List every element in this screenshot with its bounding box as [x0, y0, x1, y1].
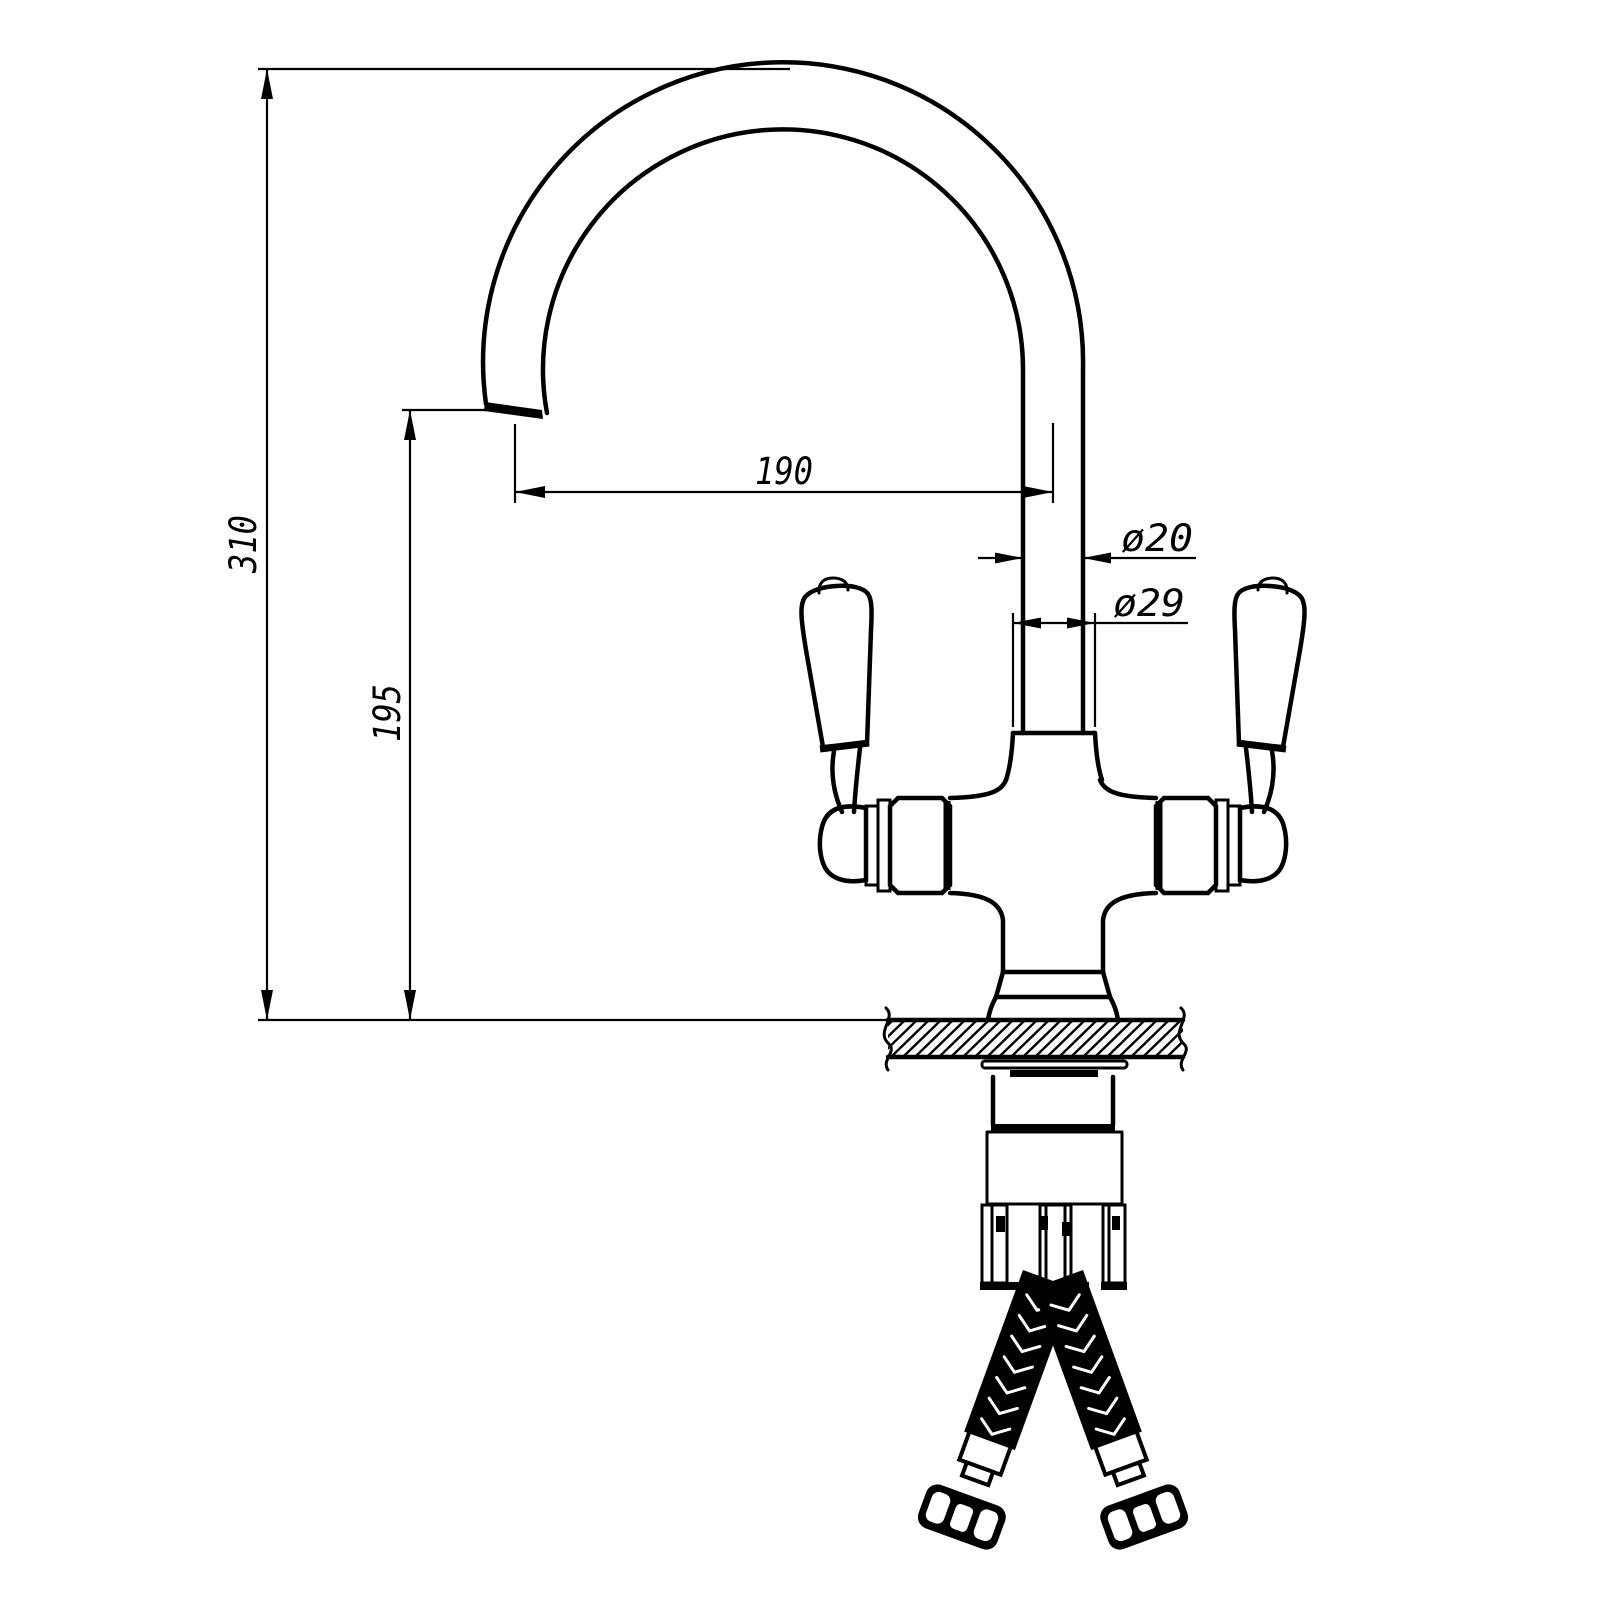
countertop-break-mark — [884, 1008, 891, 1070]
supply-hoses — [915, 1265, 1192, 1553]
right-handle — [1156, 578, 1305, 893]
dimension-body-diameter: ø29 — [1013, 582, 1188, 727]
dimension-arrow — [261, 990, 273, 1020]
faucet-body — [950, 733, 1156, 1020]
body-bottom-fillet — [950, 893, 1003, 972]
faucet-technical-drawing: 310 195 190 ø20 ø29 — [0, 0, 1600, 1600]
base-cone-side — [996, 972, 1110, 997]
nut-prong-detail — [1046, 1205, 1065, 1283]
dimension-label-d20: ø20 — [1121, 517, 1193, 560]
mounting-hardware — [980, 1061, 1127, 1290]
dimension-arrow — [1023, 486, 1053, 498]
spout-gooseneck-outline — [483, 62, 1083, 733]
mounting-flange — [982, 1061, 1127, 1068]
nut-base-bar — [1101, 1282, 1127, 1290]
countertop-hatching — [856, 1021, 1204, 1056]
nut-prong-notch — [1112, 1216, 1120, 1230]
body-neck-side — [1095, 733, 1102, 780]
nut-prong-notch — [996, 1216, 1005, 1232]
dimension-spout-height: 195 — [366, 410, 498, 1020]
body-bottom-fillet — [1103, 893, 1156, 972]
dimension-spout-reach: 190 — [515, 423, 1053, 503]
dimension-arrow — [404, 410, 416, 440]
spout — [483, 62, 1083, 733]
dimension-arrow — [1083, 553, 1111, 564]
dimension-label-195: 195 — [366, 684, 409, 742]
body-neck-side — [1006, 733, 1013, 780]
dimension-arrow — [515, 486, 545, 498]
dimension-arrow — [1013, 618, 1041, 629]
body-top-fillet — [1100, 780, 1156, 798]
mounting-gasket — [1010, 1070, 1098, 1077]
left-handle — [801, 578, 950, 893]
dimension-arrow — [404, 990, 416, 1020]
right-supply-hose — [1018, 1265, 1191, 1553]
dimension-overall-height: 310 — [222, 69, 888, 1020]
threaded-shank — [993, 1077, 1113, 1125]
dimension-tube-diameter: ø20 — [978, 517, 1196, 564]
dimension-label-d29: ø29 — [1113, 582, 1185, 625]
base-skirt — [1110, 997, 1118, 1020]
dimension-arrow — [995, 553, 1023, 564]
body-top-fillet — [950, 780, 1006, 798]
mounting-nut — [987, 1132, 1122, 1204]
nut-prong-notch — [1040, 1216, 1048, 1230]
base-skirt — [988, 997, 996, 1020]
dimension-label-190: 190 — [755, 450, 813, 493]
countertop-break-mark — [1179, 1008, 1186, 1070]
dimension-arrow — [261, 69, 273, 99]
dimension-label-310: 310 — [222, 515, 265, 574]
nut-prong-notch — [1062, 1222, 1070, 1236]
